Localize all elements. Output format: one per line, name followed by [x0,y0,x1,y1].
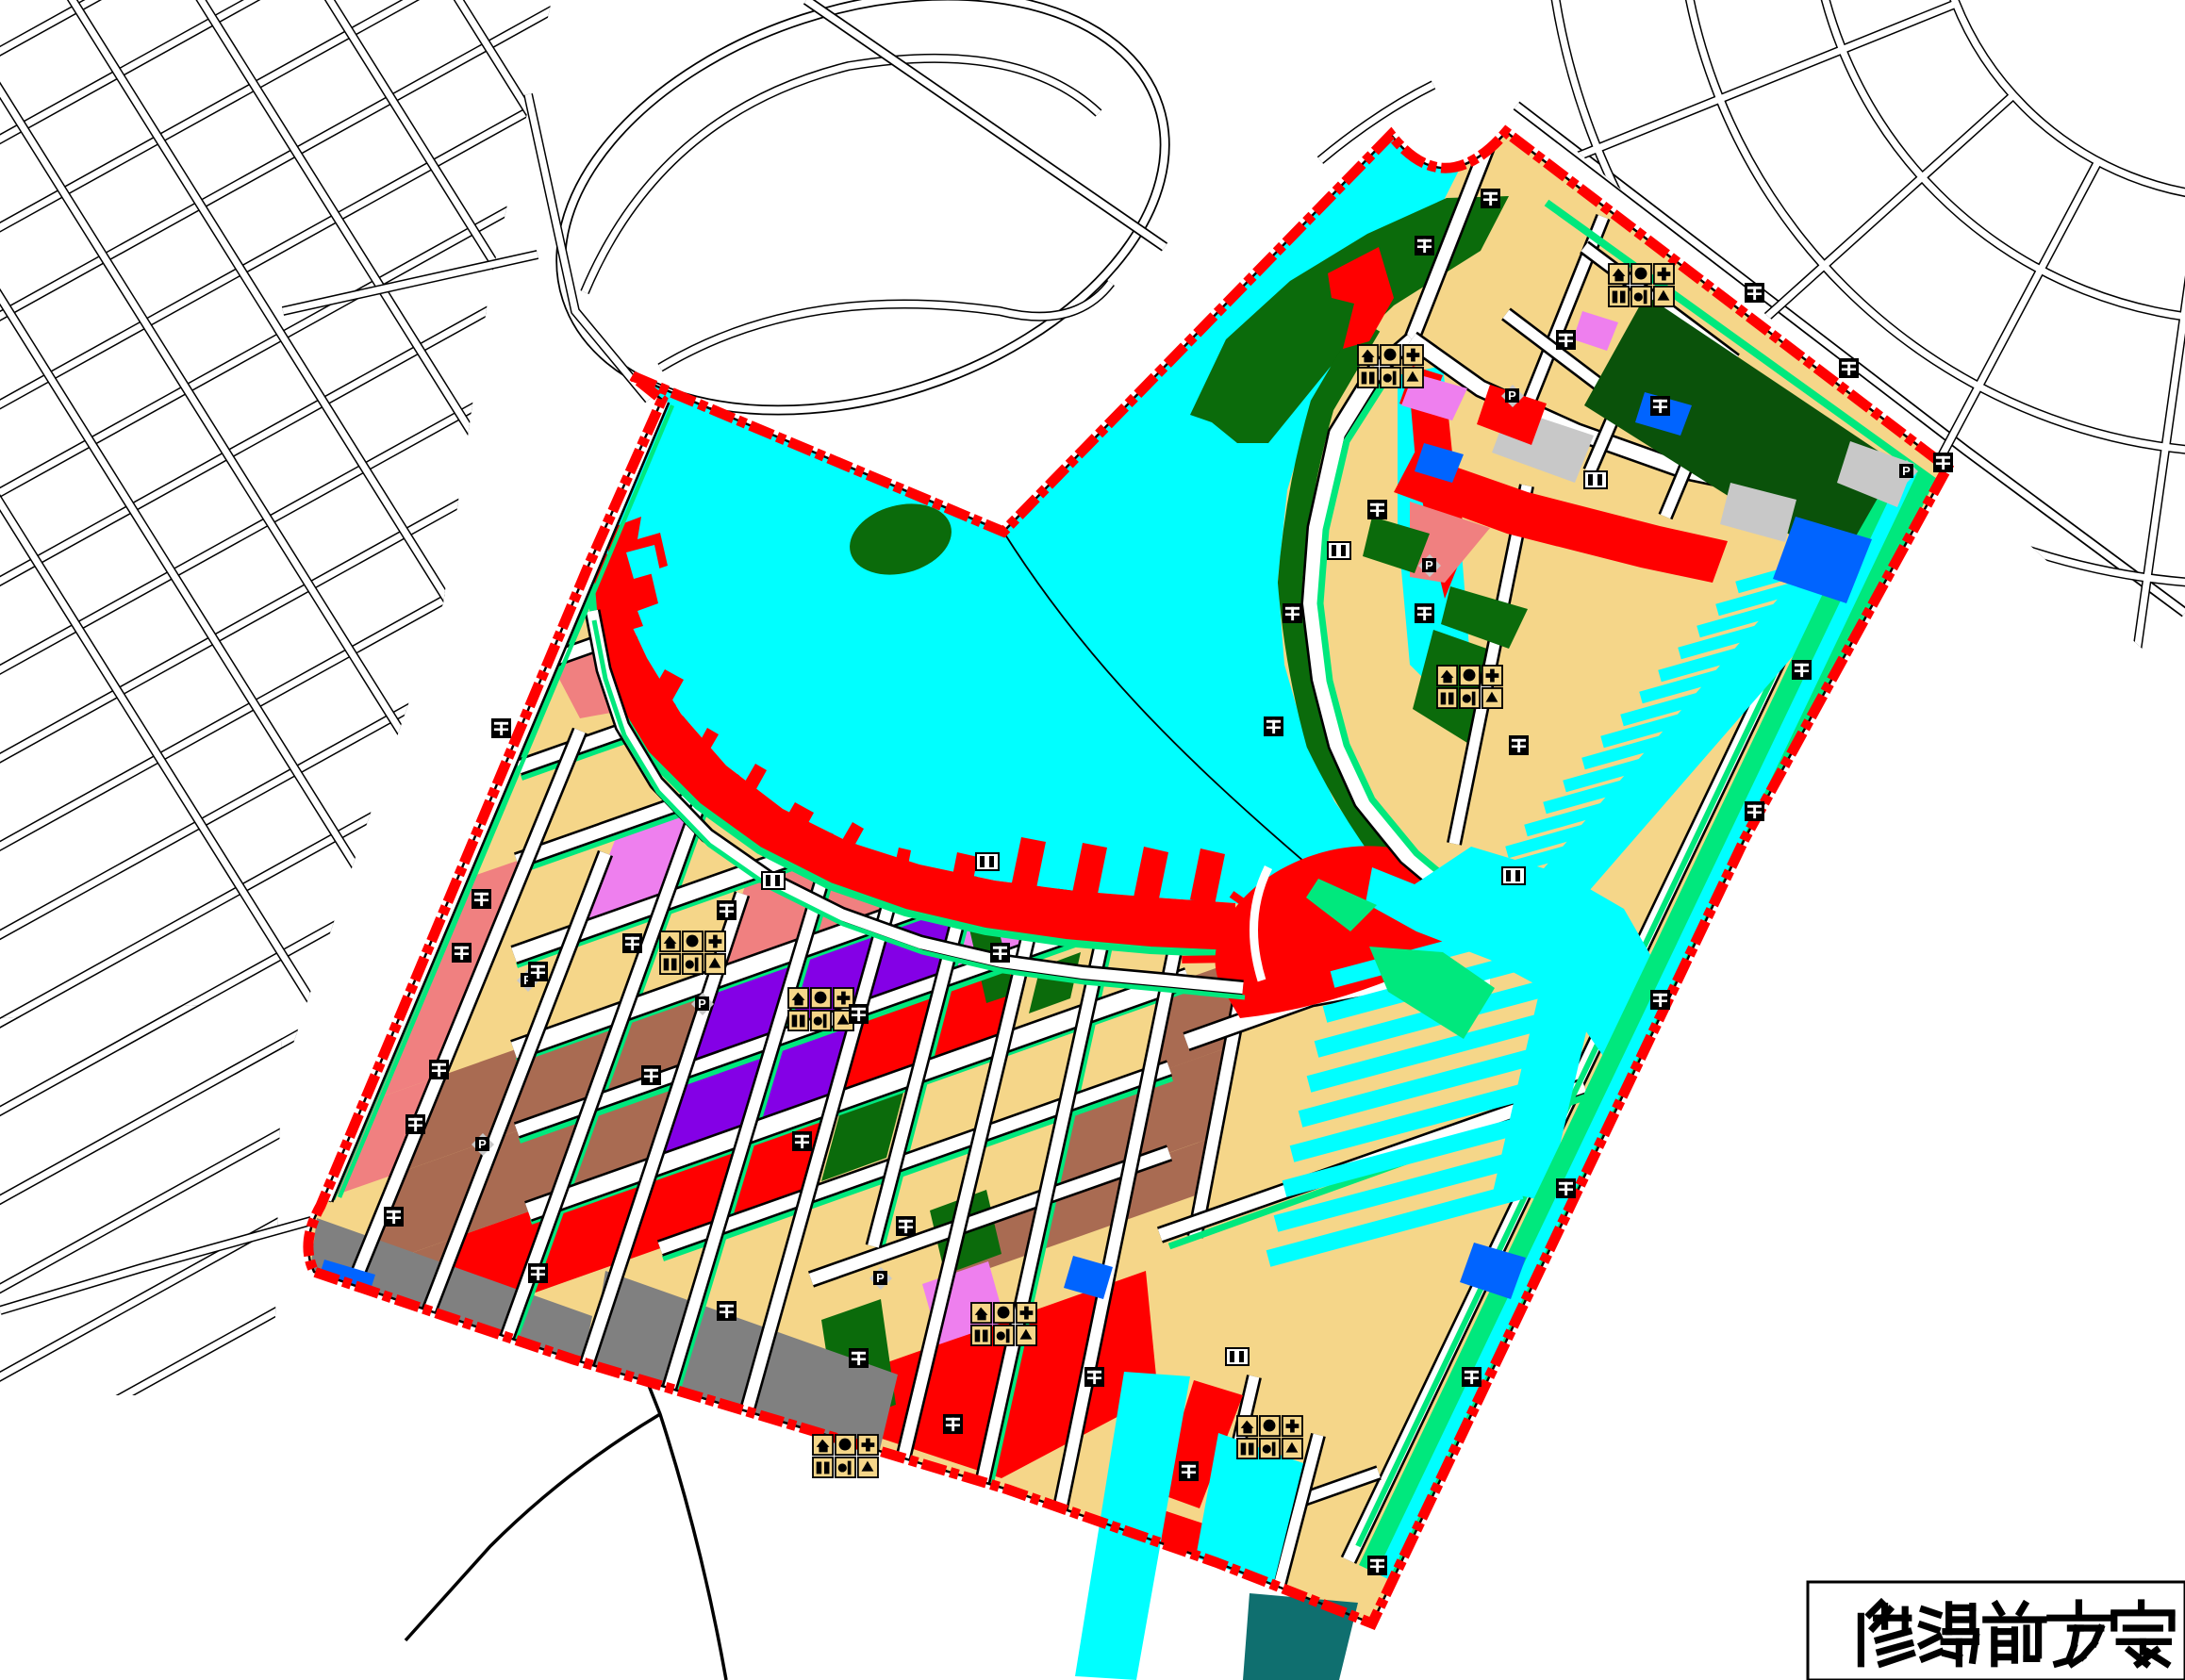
svg-text:P: P [1902,464,1911,478]
svg-text:P: P [698,996,706,1011]
svg-text:P: P [1508,388,1516,403]
svg-text:P: P [876,1271,885,1285]
svg-text:P: P [478,1137,487,1151]
svg-text:P: P [1425,558,1433,572]
